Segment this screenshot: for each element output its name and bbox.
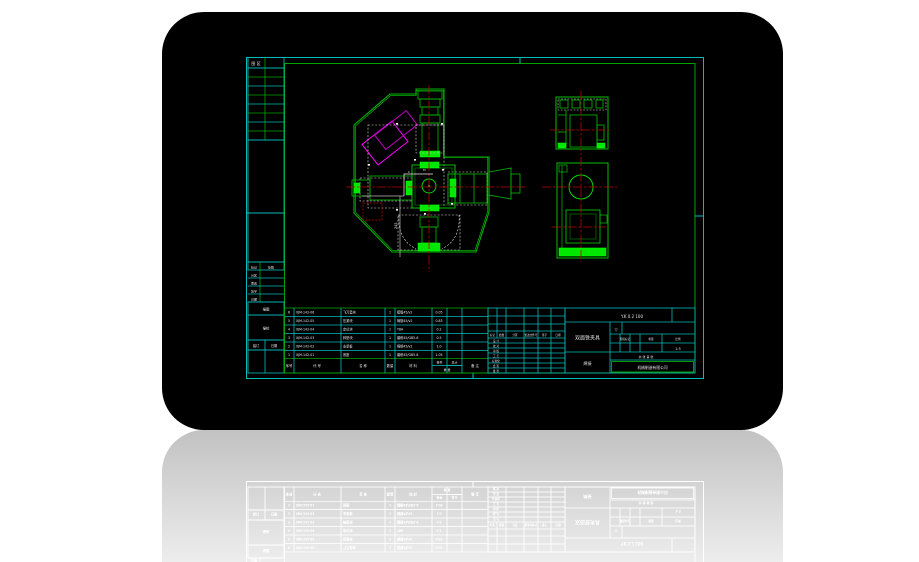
scale-value: 1:5 — [675, 509, 680, 513]
bom-row: 4 XJM-142-04 定位块 1 T8A 0.2 — [288, 528, 442, 533]
bom-rows: 6 XJM-142-06 飞刀垫块 1 模锻45/v2 0.05 5 XJM-1… — [288, 503, 443, 551]
svg-text:标准化: 标准化 — [492, 359, 500, 363]
svg-text:压紧块: 压紧块 — [343, 537, 353, 542]
surface-mark: ▽ — [614, 528, 618, 533]
svg-text:0.5: 0.5 — [436, 336, 441, 340]
svg-text:标记: 标记 — [490, 523, 496, 527]
svg-text:斜垫块: 斜垫块 — [343, 520, 353, 525]
strip-rev-header-b: 处数 — [268, 264, 274, 269]
bom-row: 6 XJM-142-06 飞刀垫块 1 模锻45/v2 0.05 — [288, 310, 443, 315]
sheet-borders — [246, 482, 704, 562]
svg-text:总计: 总计 — [451, 360, 457, 365]
svg-text:0.5: 0.5 — [436, 520, 441, 524]
svg-text:备 注: 备 注 — [471, 363, 479, 368]
product-name: 双面铣夹具 — [575, 335, 600, 342]
svg-text:磨削45/GB5-6: 磨削45/GB5-6 — [397, 520, 418, 525]
svg-text:校 对: 校 对 — [493, 344, 499, 348]
svg-text:重量: 重量 — [648, 519, 654, 523]
svg-text:材 料: 材 料 — [409, 492, 417, 497]
strip-block-a: 描图 — [263, 307, 270, 312]
svg-text:审 核: 审 核 — [493, 507, 499, 511]
left-margin-strip: 图 区 标记 — [248, 487, 284, 562]
svg-text:重 量: 重 量 — [444, 367, 451, 372]
svg-text:1: 1 — [288, 503, 290, 507]
title-small-labels: 阶段标记 重量 比例 — [620, 519, 681, 523]
note-c: C — [408, 170, 410, 174]
svg-text:铸钢45/v2: 铸钢45/v2 — [397, 511, 412, 516]
svg-text:工 艺: 工 艺 — [493, 502, 499, 506]
svg-text:0.05: 0.05 — [435, 545, 442, 549]
strip-bottom-a: 装订 — [253, 343, 260, 348]
title-block: Y.K 0.2 100 双面铣夹具 焊接 — [565, 487, 695, 552]
revision-table: 标记 处数 分区 更改文件号 签字 日期 设 计 校 对 审 核 工 艺 标准化… — [488, 308, 565, 373]
bom-row: 3 XJM-142-03 斜垫块 1 磨削45/GB5-6 0.5 — [288, 335, 442, 340]
svg-text:比例: 比例 — [675, 337, 681, 341]
svg-text:斜垫块: 斜垫块 — [343, 335, 353, 340]
svg-text:0.83: 0.83 — [435, 319, 442, 323]
svg-text:1: 1 — [389, 511, 391, 515]
strip-bottom-a: 装订 — [253, 512, 260, 517]
doc-number: Y.K 0.2 100 — [620, 314, 644, 319]
process-label: 焊接 — [583, 493, 592, 500]
bom-headers: 序号 代 号 名 称 数量 材 料 单件 总计 重 量 备 注 — [286, 488, 480, 501]
corner-label: 图 区 — [251, 60, 260, 66]
left-arm — [352, 176, 412, 200]
sheet-info: 共 张 第 张 — [639, 501, 654, 506]
svg-text:0.2: 0.2 — [436, 328, 441, 332]
svg-text:单件: 单件 — [436, 360, 442, 365]
svg-text:名 称: 名 称 — [359, 492, 367, 497]
sheet-info: 共 张 第 张 — [639, 354, 654, 359]
svg-text:日期: 日期 — [555, 523, 561, 527]
hidden-pockets — [360, 125, 487, 250]
svg-text:数量: 数量 — [387, 492, 394, 497]
svg-text:代 号: 代 号 — [313, 363, 321, 368]
svg-text:签字: 签字 — [542, 333, 548, 337]
cad-sheet: 图 区 标记 — [246, 57, 704, 379]
svg-text:XJM-142-06: XJM-142-06 — [296, 311, 314, 315]
svg-text:支承板: 支承板 — [343, 344, 353, 349]
svg-text:模锻45/v2: 模锻45/v2 — [397, 545, 412, 550]
svg-text:阶段标记: 阶段标记 — [620, 337, 631, 341]
svg-text:序号: 序号 — [286, 492, 293, 497]
svg-text:T8A: T8A — [396, 328, 404, 332]
svg-text:XJM-142-04: XJM-142-04 — [296, 528, 314, 532]
svg-text:批 准: 批 准 — [493, 369, 499, 373]
svg-text:1: 1 — [389, 503, 391, 507]
svg-text:压紧块: 压紧块 — [343, 318, 353, 323]
svg-text:XJM-142-05: XJM-142-05 — [296, 537, 314, 541]
svg-text:6: 6 — [288, 545, 290, 549]
revision-headers: 标记 处数 分区 更改文件号 签字 日期 — [490, 523, 561, 527]
svg-text:设 计: 设 计 — [493, 517, 499, 521]
svg-text:标准化: 标准化 — [492, 497, 500, 501]
company-name: 机械制造有限公司 — [637, 365, 668, 370]
svg-text:T8A: T8A — [396, 528, 404, 532]
svg-text:3: 3 — [288, 520, 290, 524]
note-m: M — [423, 168, 426, 172]
cad-sheet: 图 区 标记 — [246, 481, 704, 562]
svg-text:0.05: 0.05 — [435, 311, 442, 315]
reflection: 图 区 标记 — [162, 430, 783, 562]
svg-text:2: 2 — [288, 511, 290, 515]
svg-text:1.0: 1.0 — [436, 345, 441, 349]
side-view-top — [550, 91, 612, 155]
product-name: 双面铣夹具 — [575, 519, 600, 526]
svg-text:1.05: 1.05 — [435, 353, 442, 357]
bom-table: 6 XJM-142-06 飞刀垫块 1 模锻45/v2 0.05 5 XJM-1… — [285, 308, 489, 373]
strip-rev-row-1: 更改 — [251, 281, 257, 286]
svg-text:1.0: 1.0 — [436, 511, 441, 515]
strip-block-b: 描校 — [263, 326, 270, 331]
top-slide-column — [418, 91, 442, 153]
magenta-plate-2 — [375, 111, 418, 150]
svg-text:XJM-142-02: XJM-142-02 — [296, 345, 314, 349]
svg-text:会 签: 会 签 — [493, 492, 499, 496]
svg-text:单件: 单件 — [436, 496, 442, 501]
svg-text:1: 1 — [389, 537, 391, 541]
cad-drawing-svg: 图 区 标记 — [246, 57, 704, 379]
surface-mark: ▽ — [614, 327, 618, 332]
svg-text:XJM-142-01: XJM-142-01 — [296, 353, 314, 357]
svg-text:重 量: 重 量 — [444, 488, 451, 493]
bom-row: 2 XJM-142-02 支承板 1 铸钢45/v2 1.0 — [288, 511, 442, 516]
strip-rev-row-0: 分区 — [251, 273, 257, 278]
bom-row: 1 XJM-142-01 底座 1 磨削45/GB5-6 1.05 — [288, 503, 443, 508]
svg-text:底座: 底座 — [343, 503, 350, 508]
cad-drawing-svg: 图 区 标记 — [246, 481, 704, 562]
svg-text:XJM-142-04: XJM-142-04 — [296, 328, 314, 332]
process-label: 焊接 — [583, 360, 592, 367]
red-dashed-pocket — [363, 203, 382, 220]
strip-bottom-b: 日期 — [271, 343, 277, 348]
svg-text:飞刀垫块: 飞刀垫块 — [343, 545, 357, 550]
bom-table: 6 XJM-142-06 飞刀垫块 1 模锻45/v2 0.05 5 XJM-1… — [285, 487, 489, 552]
bom-row: 4 XJM-142-04 定位块 1 T8A 0.2 — [288, 327, 442, 332]
strip-block-b: 描校 — [263, 530, 270, 535]
rotary-unit — [412, 162, 455, 211]
svg-text:重量: 重量 — [648, 337, 654, 341]
svg-text:模锻45/v2: 模锻45/v2 — [397, 310, 412, 315]
svg-text:XJM-142-03: XJM-142-03 — [296, 520, 314, 524]
svg-text:更改文件号: 更改文件号 — [525, 333, 538, 337]
svg-text:材 料: 材 料 — [409, 363, 417, 368]
svg-text:阶段标记: 阶段标记 — [620, 519, 631, 523]
svg-text:定位块: 定位块 — [343, 327, 353, 332]
svg-text:总计: 总计 — [451, 496, 457, 501]
side-view-bottom — [542, 157, 618, 262]
svg-text:数量: 数量 — [387, 363, 394, 368]
svg-text:序号: 序号 — [286, 363, 293, 368]
svg-text:磨削45/GB5-6: 磨削45/GB5-6 — [397, 503, 418, 508]
svg-text:1: 1 — [389, 545, 391, 549]
svg-text:铸钢45/v2: 铸钢45/v2 — [397, 537, 412, 542]
svg-text:比例: 比例 — [675, 519, 681, 523]
svg-text:磨削45/GB5-6: 磨削45/GB5-6 — [397, 352, 418, 357]
revision-headers: 标记 处数 分区 更改文件号 签字 日期 — [490, 333, 561, 337]
svg-text:工 艺: 工 艺 — [493, 354, 499, 358]
svg-text:1: 1 — [389, 328, 391, 332]
svg-text:更改文件号: 更改文件号 — [525, 523, 538, 527]
svg-text:1: 1 — [389, 345, 391, 349]
svg-text:备 注: 备 注 — [471, 492, 479, 497]
title-block: Y.K 0.2 100 双面铣夹具 焊接 — [565, 308, 695, 373]
title-small-labels: 阶段标记 重量 比例 — [620, 337, 681, 341]
svg-text:6: 6 — [288, 311, 290, 315]
svg-text:5: 5 — [288, 537, 290, 541]
svg-text:1: 1 — [389, 528, 391, 532]
left-margin-strip: 图 区 标记 — [248, 58, 284, 374]
svg-text:3: 3 — [288, 336, 290, 340]
right-arm — [448, 168, 520, 203]
svg-text:4: 4 — [288, 528, 290, 532]
company-name: 机械制造有限公司 — [637, 490, 668, 495]
svg-text:支承板: 支承板 — [343, 511, 353, 516]
strip-rev-row-3: 日期 — [251, 559, 257, 562]
svg-text:校 对: 校 对 — [493, 512, 499, 516]
svg-text:XJM-142-03: XJM-142-03 — [296, 336, 314, 340]
svg-text:XJM-142-01: XJM-142-01 — [296, 503, 314, 507]
svg-text:代 号: 代 号 — [313, 492, 321, 497]
svg-text:XJM-142-06: XJM-142-06 — [296, 545, 314, 549]
bom-row: 5 XJM-142-05 压紧块 1 铸钢45/v2 0.83 — [288, 537, 443, 542]
svg-text:1: 1 — [389, 311, 391, 315]
strip-bottom-b: 日期 — [271, 512, 277, 517]
svg-text:1.05: 1.05 — [435, 503, 442, 507]
svg-text:磨削45/GB5-6: 磨削45/GB5-6 — [397, 335, 418, 340]
svg-text:4: 4 — [288, 328, 290, 332]
svg-text:定位块: 定位块 — [343, 528, 353, 533]
bom-row: 1 XJM-142-01 底座 1 磨削45/GB5-6 1.05 — [288, 352, 443, 357]
revision-table: 标记 处数 分区 更改文件号 签字 日期 设 计 校 对 审 核 工 艺 标准化… — [488, 487, 565, 552]
dim-245: 245 — [394, 223, 398, 229]
scale-value: 1:5 — [675, 347, 680, 351]
svg-text:处数: 处数 — [499, 333, 505, 337]
svg-text:0.83: 0.83 — [435, 537, 442, 541]
svg-text:0.2: 0.2 — [436, 528, 441, 532]
svg-text:1: 1 — [288, 353, 290, 357]
strip-rev-row-3: 日期 — [251, 297, 257, 302]
svg-text:分区: 分区 — [512, 333, 518, 337]
svg-text:1: 1 — [389, 319, 391, 323]
svg-text:飞刀垫块: 飞刀垫块 — [343, 310, 357, 315]
svg-text:1: 1 — [389, 353, 391, 357]
svg-text:标记: 标记 — [490, 333, 496, 337]
page: 图 区 标记 — [0, 0, 919, 562]
clamp-top — [420, 151, 440, 157]
strip-block-a: 描图 — [263, 549, 270, 554]
svg-text:分区: 分区 — [512, 523, 518, 527]
svg-text:审 核: 审 核 — [493, 349, 499, 353]
svg-text:1: 1 — [389, 520, 391, 524]
svg-text:底座: 底座 — [343, 352, 350, 357]
svg-text:处数: 处数 — [499, 523, 505, 527]
strip-rev-header-a: 标记 — [251, 264, 257, 269]
bom-row: 3 XJM-142-03 斜垫块 1 磨削45/GB5-6 0.5 — [288, 520, 442, 525]
strip-rev-row-2: 签字 — [251, 289, 257, 294]
svg-text:日期: 日期 — [555, 333, 561, 337]
svg-text:1: 1 — [389, 336, 391, 340]
svg-text:铸钢45/v2: 铸钢45/v2 — [397, 344, 412, 349]
bom-row: 2 XJM-142-02 支承板 1 铸钢45/v2 1.0 — [288, 344, 442, 349]
svg-text:铸钢45/v2: 铸钢45/v2 — [397, 318, 412, 323]
screen: 图 区 标记 — [162, 430, 783, 562]
svg-text:5: 5 — [288, 319, 290, 323]
svg-text:批 准: 批 准 — [493, 487, 499, 491]
svg-text:名 称: 名 称 — [359, 363, 367, 368]
revision-row-labels: 设 计 校 对 审 核 工 艺 标准化 会 签 批 准 — [492, 487, 500, 521]
svg-text:设 计: 设 计 — [493, 339, 499, 343]
plan-view: C M 245 — [346, 85, 526, 272]
sheet-borders — [246, 57, 704, 379]
doc-number: Y.K 0.2 100 — [620, 541, 644, 546]
screen: 图 区 标记 — [162, 12, 783, 430]
svg-text:会 签: 会 签 — [493, 364, 499, 368]
svg-text:XJM-142-05: XJM-142-05 — [296, 319, 314, 323]
svg-text:2: 2 — [288, 345, 290, 349]
svg-text:签字: 签字 — [542, 523, 548, 527]
bom-row: 6 XJM-142-06 飞刀垫块 1 模锻45/v2 0.05 — [288, 545, 443, 550]
bom-row: 5 XJM-142-05 压紧块 1 铸钢45/v2 0.83 — [288, 318, 443, 323]
svg-text:XJM-142-02: XJM-142-02 — [296, 511, 314, 515]
